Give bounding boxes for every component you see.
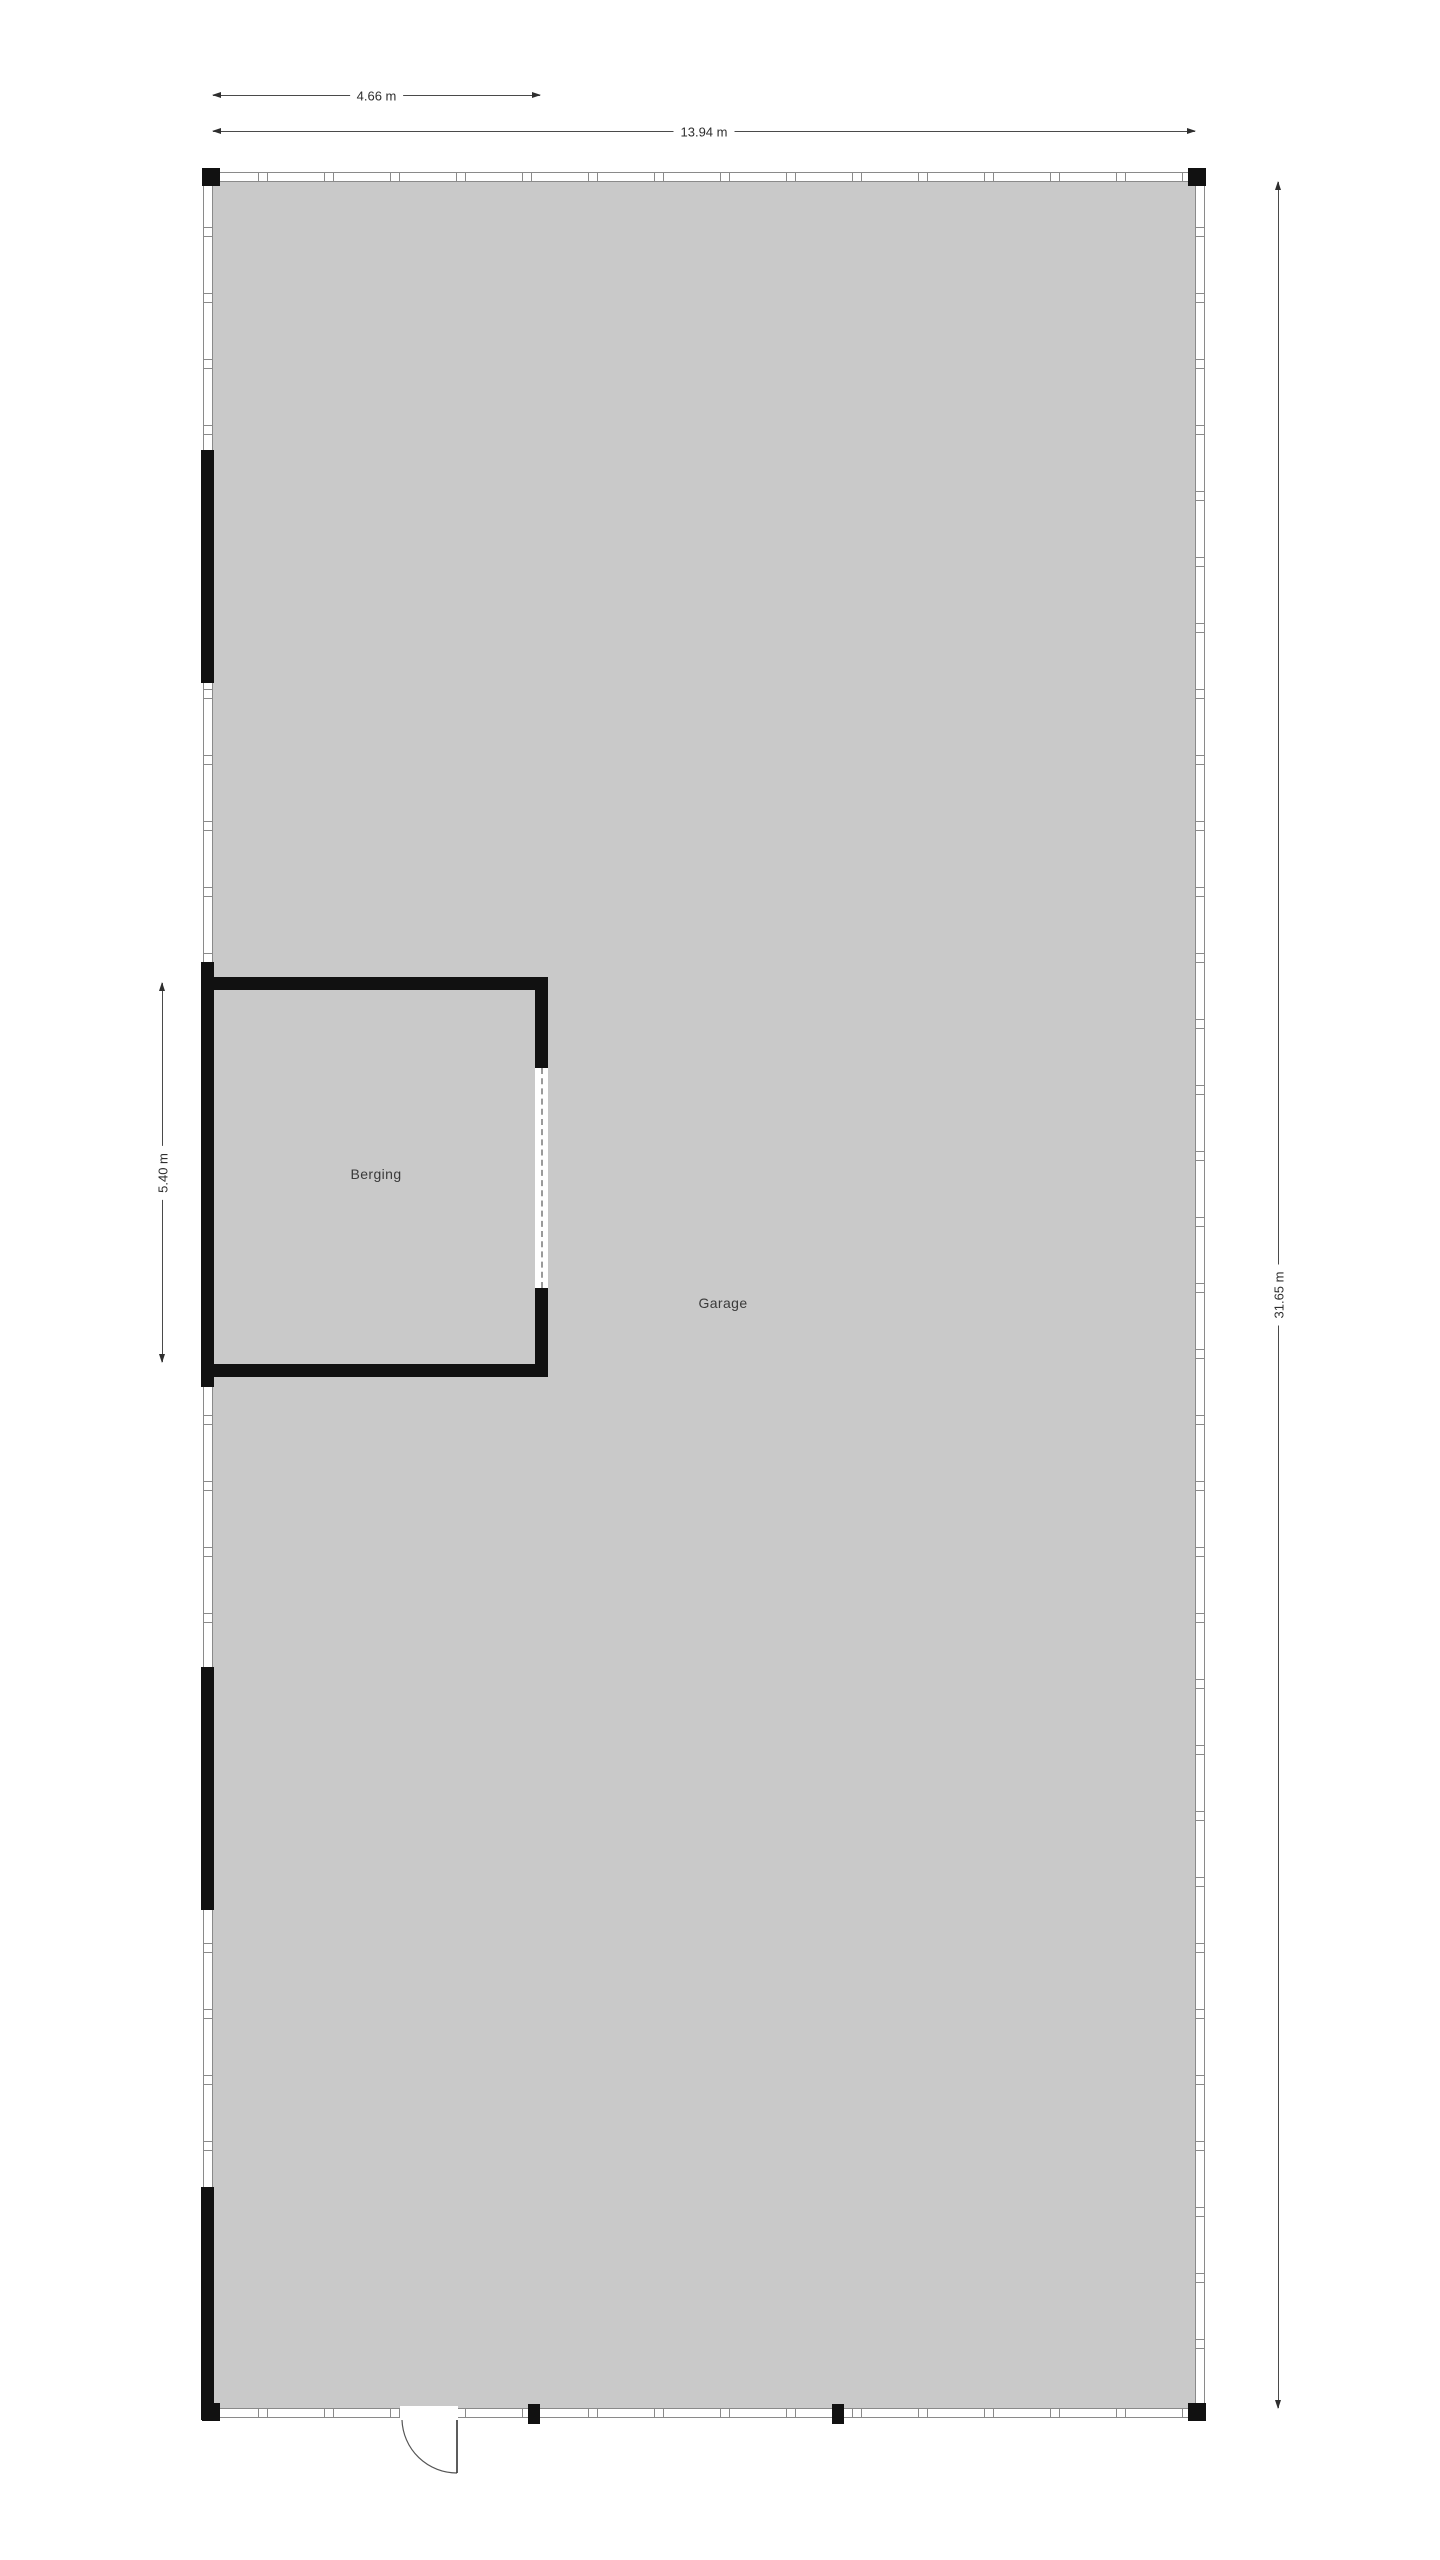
arrowhead-down-icon bbox=[159, 1354, 165, 1363]
wall-left-solid-segment-4 bbox=[201, 2187, 214, 2420]
wall-bottom-post-2 bbox=[832, 2404, 844, 2424]
wall-bottom-post-1 bbox=[528, 2404, 540, 2424]
berging-wall-top bbox=[212, 977, 548, 990]
corner-top-left bbox=[202, 168, 220, 186]
arrowhead-left-icon bbox=[212, 128, 221, 134]
dimension-berging-width: 4.66 m bbox=[213, 95, 540, 96]
dimension-berging-width-label: 4.66 m bbox=[350, 88, 404, 103]
wall-bottom bbox=[203, 2408, 1205, 2418]
wall-left-solid-segment-2 bbox=[201, 962, 214, 1387]
arrowhead-right-icon bbox=[532, 92, 541, 98]
wall-top bbox=[203, 172, 1205, 182]
corner-top-right bbox=[1188, 168, 1206, 186]
room-label-berging: Berging bbox=[350, 1166, 401, 1182]
arrowhead-left-icon bbox=[212, 92, 221, 98]
door-swing-arc bbox=[395, 2412, 470, 2487]
wall-left-solid-segment-1 bbox=[201, 450, 214, 683]
arrowhead-down-icon bbox=[1275, 2400, 1281, 2409]
dimension-total-height: 31.65 m bbox=[1278, 182, 1279, 2408]
floorplan-canvas: 4.66 m 13.94 m 5.40 m 31.65 m bbox=[0, 0, 1440, 2560]
dimension-berging-height: 5.40 m bbox=[162, 983, 163, 1362]
wall-left-solid-segment-3 bbox=[201, 1667, 214, 1910]
arrowhead-up-icon bbox=[1275, 181, 1281, 190]
room-label-garage: Garage bbox=[698, 1295, 747, 1311]
dimension-total-width: 13.94 m bbox=[213, 131, 1195, 132]
dimension-total-height-label: 31.65 m bbox=[1271, 1265, 1286, 1326]
dimension-berging-height-label: 5.40 m bbox=[155, 1146, 170, 1200]
arrowhead-up-icon bbox=[159, 982, 165, 991]
dimension-total-width-label: 13.94 m bbox=[674, 124, 735, 139]
wall-right bbox=[1195, 172, 1205, 2420]
berging-wall-opening bbox=[535, 1068, 548, 1288]
corner-bottom-right bbox=[1188, 2403, 1206, 2421]
berging-wall-bottom bbox=[212, 1364, 548, 1377]
arrowhead-right-icon bbox=[1187, 128, 1196, 134]
corner-bottom-left bbox=[202, 2403, 220, 2421]
